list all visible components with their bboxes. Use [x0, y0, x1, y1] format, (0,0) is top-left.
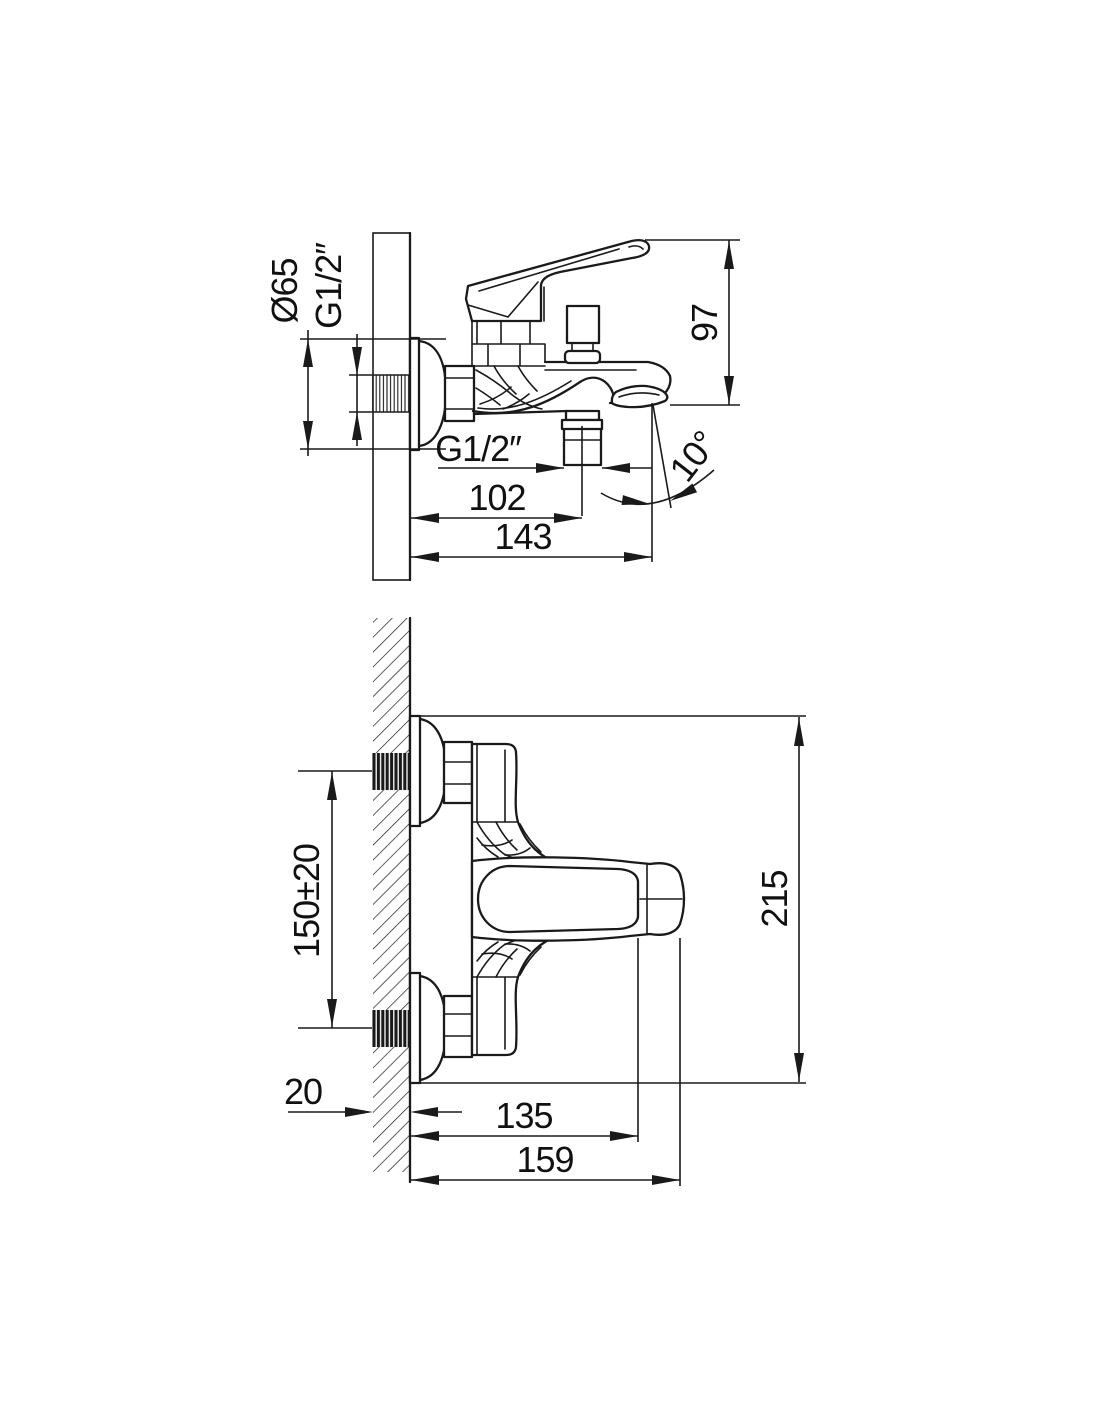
dim-label: 215 [754, 870, 795, 927]
dim-label: 143 [494, 516, 551, 557]
supply-pipe-lower [372, 1010, 410, 1047]
plan-wall [372, 618, 410, 1182]
mounting-nut-lower [444, 996, 472, 1057]
mounting-nut [445, 366, 474, 421]
dim-label: 97 [684, 304, 725, 342]
pipe-thread-lines [372, 1010, 410, 1047]
handle-plan [472, 857, 684, 940]
dim-label: Ø65 [264, 258, 305, 323]
pipe-flange-upper [566, 411, 599, 420]
handle-lever-grip [478, 866, 638, 932]
diverter-flange [565, 351, 600, 363]
inlet-nipple-thread [373, 375, 410, 412]
dim-label: 150±20 [286, 844, 327, 958]
nipple-thread-lines [373, 375, 410, 412]
supply-pipe-upper [372, 753, 410, 790]
escutcheon-plate-lower [410, 973, 420, 1083]
mounting-nut-upper [444, 742, 472, 803]
escutcheon-plate-upper [410, 716, 420, 826]
escutcheon-plate [410, 338, 419, 450]
pipe-thread-lines [372, 753, 410, 790]
dim-label: G1/2″ [308, 242, 349, 329]
drawing-page: Ø65 G1/2″ 97 G1/2″ 102 [0, 0, 1100, 1422]
dim-label: 20 [284, 1071, 322, 1112]
dim-label: 135 [495, 1095, 552, 1136]
diverter-cap [567, 306, 599, 343]
dim-label: G1/2″ [435, 428, 522, 469]
diverter-knob [565, 306, 600, 363]
wall-hatch [373, 618, 410, 1172]
dim-label: 102 [468, 477, 525, 518]
dim-label: 159 [516, 1139, 573, 1180]
technical-drawing: Ø65 G1/2″ 97 G1/2″ 102 [0, 0, 1100, 1422]
page-background [0, 0, 1100, 1422]
